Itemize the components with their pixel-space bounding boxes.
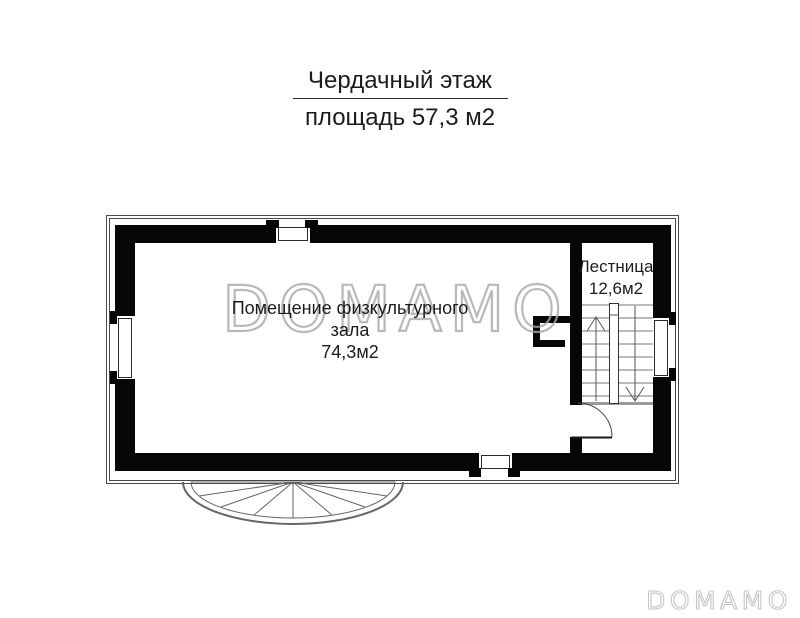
window-jamb bbox=[266, 220, 279, 228]
interior-wall-door-stub bbox=[570, 437, 582, 453]
gym-room-name-line2: зала bbox=[200, 319, 500, 341]
gym-room-label: Помещение физкультурного зала 74,3м2 bbox=[200, 297, 500, 363]
window-jamb bbox=[110, 311, 117, 324]
stairwell-name: Лестница bbox=[556, 256, 676, 278]
window-jamb bbox=[508, 468, 520, 477]
stairwell-area: 12,6м2 bbox=[556, 278, 676, 300]
window-jamb bbox=[305, 220, 318, 228]
entrance-door bbox=[571, 403, 612, 438]
window-jamb bbox=[110, 371, 117, 384]
terrace-fan-lines bbox=[191, 482, 395, 518]
wall-north bbox=[115, 225, 671, 243]
wall-south bbox=[115, 453, 671, 471]
floor-plan-page: Чердачный этаж площадь 57,3 м2 bbox=[0, 0, 800, 618]
window-frame bbox=[655, 321, 668, 376]
door-swing-arc bbox=[578, 403, 612, 437]
terrace-semicircle bbox=[183, 482, 403, 524]
watermark-corner: DOMAMO bbox=[646, 586, 792, 615]
window-jamb bbox=[669, 312, 676, 325]
gym-room-area: 74,3м2 bbox=[200, 341, 500, 363]
window-jamb bbox=[469, 468, 481, 477]
window-jamb bbox=[669, 368, 676, 381]
window-frame bbox=[482, 456, 510, 469]
window-frame bbox=[279, 228, 308, 241]
gym-room-name-line1: Помещение физкультурного bbox=[200, 297, 500, 319]
stair-divider bbox=[610, 304, 619, 404]
window-frame bbox=[119, 319, 132, 378]
stairwell-label: Лестница 12,6м2 bbox=[556, 256, 676, 300]
staircase bbox=[582, 304, 653, 406]
window-east bbox=[652, 312, 676, 381]
window-west bbox=[110, 311, 136, 384]
